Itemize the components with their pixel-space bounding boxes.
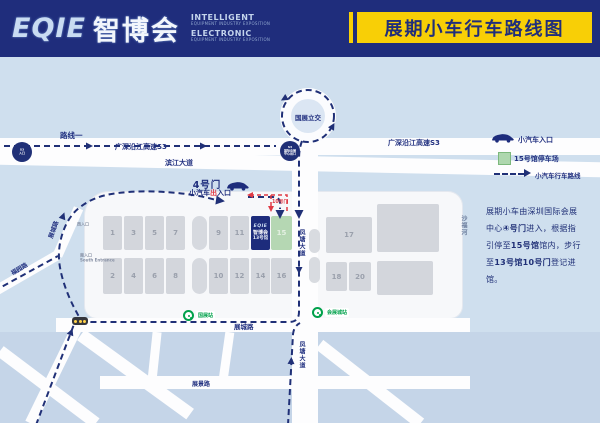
central-corridor-south <box>192 258 207 294</box>
header-bar: EQIE 智博会 INTELLIGENT EQUIPMENT INDUSTRY … <box>0 0 600 57</box>
road-island-2 <box>309 257 320 283</box>
note-line-4: 至13号馆10号门登记进 <box>486 254 594 271</box>
zhancheng-label-west: 展城路 <box>46 219 61 239</box>
hall-14: 14 <box>251 258 270 294</box>
traffic-light-icon <box>72 317 88 325</box>
hall-3: 3 <box>124 216 143 250</box>
hall-13-expo: EQIE 智博会 13号馆 <box>251 216 270 250</box>
tagline-bottom-sub: EQUIPMENT INDUSTRY EXPOSITION <box>191 38 270 42</box>
hall-12: 12 <box>230 258 249 294</box>
hall-16: 16 <box>271 258 292 294</box>
fengtang-label-south: 凤塘大道 <box>297 341 306 369</box>
gate-4-sublabel: 小汽车出入口 <box>170 188 250 198</box>
note-line-1: 展期小车由深圳国际会展 <box>486 203 594 220</box>
south-entrance-label: 南入口South Entrance <box>80 253 115 263</box>
west-road-upper <box>53 206 83 258</box>
zhanjing-label: 展景路 <box>192 379 210 388</box>
hall-20: 20 <box>349 262 371 291</box>
station-label-center: 国展站 <box>196 311 215 320</box>
metro-icon-east <box>312 307 323 318</box>
shafu-river-label: 沙福河 <box>459 215 468 236</box>
gate-10-label: 10号门 <box>272 198 288 205</box>
route-instructions: 展期小车由深圳国际会展 中心④号门进入，根据指 引停至15号馆馆内，步行 至13… <box>486 203 594 288</box>
interchange-label: 国展立交 <box>288 112 328 122</box>
legend-route-arrow <box>524 169 531 177</box>
title-banner: 展期小车行车路线图 <box>357 12 592 43</box>
banner-accent-bar <box>349 12 353 43</box>
hall-6: 6 <box>145 258 164 294</box>
legend-route-label: 小汽车行车路线 <box>535 170 581 180</box>
station-label-east: 会展城站 <box>325 308 349 317</box>
zhancheng-label-south: 展城路 <box>234 321 254 331</box>
hall-7: 7 <box>166 216 185 250</box>
note-line-3: 引停至15号馆馆内，步行 <box>486 237 594 254</box>
hall-10: 10 <box>209 258 228 294</box>
hall-17: 17 <box>326 217 372 253</box>
zhancheng-road-south <box>56 318 470 332</box>
west-entrance-label: 西入口 <box>77 222 89 227</box>
road-island-1 <box>309 229 320 253</box>
fengtang-label-north: 凤塘大道 <box>297 229 306 257</box>
expo-logo-chinese: 智博会 <box>93 9 180 48</box>
metro-icon-center <box>183 310 194 321</box>
note-line-5: 馆。 <box>486 271 594 288</box>
note-line-2: 中心④号门进入，根据指 <box>486 220 594 237</box>
legend-car-label: 小汽车入口 <box>518 135 553 145</box>
hall-5: 5 <box>145 216 164 250</box>
highway-label-left: 广深沿江高速S3 <box>115 142 167 152</box>
s3-entry-badge: S3入口 <box>12 142 32 162</box>
legend-route-line <box>494 173 524 175</box>
route-1-label: 路线一 <box>60 130 83 141</box>
s3-exit-badge: S3国际会展中心出口 <box>280 141 300 161</box>
hall-4: 4 <box>124 258 143 294</box>
expo-logo: EQIE 智博会 INTELLIGENT EQUIPMENT INDUSTRY … <box>12 9 270 48</box>
legend-parking-swatch <box>498 152 511 165</box>
expo-tagline: INTELLIGENT EQUIPMENT INDUSTRY EXPOSITIO… <box>191 14 270 45</box>
hall-8: 8 <box>166 258 185 294</box>
hall-15-parking: 15 <box>271 216 292 250</box>
expo-logo-letters: EQIE <box>12 13 86 44</box>
hall-18: 18 <box>326 262 347 291</box>
legend-parking-label: 15号馆停车场 <box>514 154 559 164</box>
east-service-building-1 <box>377 204 439 252</box>
route-arrow <box>59 211 68 220</box>
route-map: 1 3 5 7 9 11 EQIE 智博会 13号馆 15 2 4 6 8 10… <box>0 57 600 423</box>
east-service-building-2 <box>377 261 433 295</box>
hall-1: 1 <box>103 216 122 250</box>
route-map-poster: { "header": { "logo_main": "EQIE", "logo… <box>0 0 600 423</box>
fuyuan-road <box>0 250 61 295</box>
hall-9: 9 <box>209 216 228 250</box>
binjiang-label: 滨江大道 <box>165 158 193 168</box>
hall-11: 11 <box>230 216 249 250</box>
page-title: 展期小车行车路线图 <box>385 15 565 41</box>
central-corridor-north <box>192 216 207 250</box>
hall-2: 2 <box>103 258 122 294</box>
tagline-top-sub: EQUIPMENT INDUSTRY EXPOSITION <box>191 22 270 26</box>
highway-label-right: 广深沿江高速S3 <box>388 138 440 148</box>
